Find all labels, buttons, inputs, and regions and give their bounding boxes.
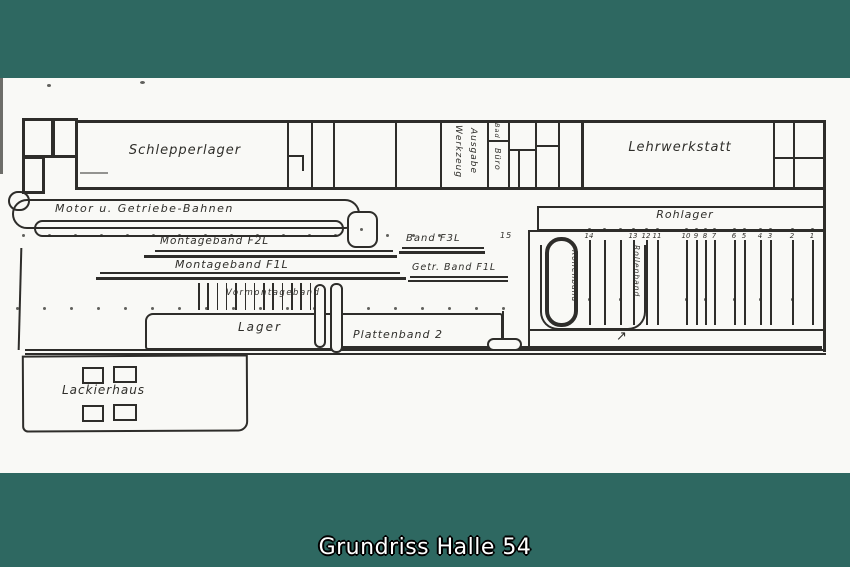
station-top-dot: [759, 228, 762, 231]
partition-wall: [793, 120, 795, 190]
station-top-dot: [619, 228, 622, 231]
image-caption: Grundriss Halle 54: [0, 535, 850, 560]
partition-wall: [440, 120, 442, 190]
station-top-dot: [645, 228, 648, 231]
conveyor-label-f2l: Montageband F2L: [160, 236, 269, 247]
station-top-dot: [769, 228, 772, 231]
support-dot: [367, 307, 370, 310]
station-top-dot: [588, 228, 591, 231]
station-line: [620, 240, 622, 325]
conveyor-label-vormontageband: Vormontageband: [226, 289, 320, 298]
station-mid-dot: [733, 298, 736, 301]
plattenband-carrier: [487, 338, 522, 351]
hall-left-wall: [18, 248, 23, 350]
room-label-werkzeug: Werkzeug: [453, 125, 462, 178]
station-top-dot: [791, 228, 794, 231]
station-mid-dot: [704, 298, 707, 301]
station-dot: [360, 228, 363, 231]
support-dot: [97, 307, 100, 310]
station-top-dot: [603, 228, 606, 231]
station-line: [604, 240, 606, 325]
support-dot: [178, 307, 181, 310]
station-number: 13: [626, 233, 640, 240]
montageband-f1l-line: [100, 272, 400, 274]
scan-edge-artifact: [0, 78, 3, 174]
band-f3l-line: [402, 247, 484, 249]
support-dot: [334, 234, 337, 237]
conveyor-label-f3l: Band F3L: [406, 234, 461, 244]
station-line: [770, 240, 772, 325]
station-number: 14: [582, 233, 596, 240]
support-dot: [100, 234, 103, 237]
montageband-f2l-line: [155, 250, 393, 252]
station-line: [744, 240, 746, 325]
station-top-dot: [704, 228, 707, 231]
partition-wall: [333, 120, 335, 190]
station-number: 1: [805, 233, 819, 240]
vormontage-tick: [207, 283, 209, 310]
station-line: [646, 240, 648, 325]
conveyor-label-motor-getriebe: Motor u. Getriebe-Bahnen: [55, 203, 234, 214]
support-dot: [286, 307, 289, 310]
room-label-bad: Bad: [494, 123, 501, 139]
small-room: [22, 118, 54, 158]
support-dot: [126, 234, 129, 237]
station-number: 7: [707, 233, 721, 240]
station-mid-dot: [588, 298, 591, 301]
support-dot: [475, 307, 478, 310]
station-line: [792, 240, 794, 325]
station-line: [696, 240, 698, 325]
getr-band-f1l-line: [408, 280, 508, 282]
station-mid-dot: [685, 298, 688, 301]
station-mid-dot: [759, 298, 762, 301]
support-dot: [421, 307, 424, 310]
room-label-ausgabe: Ausgabe: [468, 128, 477, 174]
station-mid-dot: [791, 298, 794, 301]
scan-speck: [140, 81, 145, 84]
lackierhaus-booth: [82, 367, 104, 384]
station-line: [812, 240, 814, 325]
partition-wall: [508, 120, 510, 190]
conveyor-label-plattenband: Plattenband 2: [353, 329, 443, 340]
conveyor-label-rollenband-2: Rollenband: [633, 245, 641, 297]
scan-dash: [80, 172, 108, 174]
partition-wall: [487, 140, 508, 142]
station-line: [760, 240, 762, 325]
partition-wall: [773, 157, 826, 159]
station-number: 5: [737, 233, 751, 240]
montageband-f1l-line: [96, 277, 406, 280]
small-room: [22, 156, 45, 194]
station-area-divider: [528, 230, 530, 350]
partition-wall: [508, 149, 535, 151]
station-top-dot: [743, 228, 746, 231]
flow-arrow: ↗: [616, 330, 628, 343]
support-dot: [151, 307, 154, 310]
station-top-dot: [733, 228, 736, 231]
partition-wall: [535, 145, 558, 147]
vormontage-tick: [198, 283, 200, 310]
station-top-dot: [656, 228, 659, 231]
partition-wall: [558, 120, 560, 190]
small-room: [52, 118, 78, 158]
support-dot: [43, 307, 46, 310]
station-area-top-line: [528, 230, 826, 232]
station-top-dot: [713, 228, 716, 231]
station-top-dot: [685, 228, 688, 231]
conveyor-label-f1l: Montageband F1L: [175, 259, 289, 270]
support-dot: [74, 234, 77, 237]
station-mid-dot: [619, 298, 622, 301]
lackierhaus-booth: [113, 404, 137, 421]
partition-wall: [535, 120, 537, 190]
support-dot: [16, 307, 19, 310]
support-dot: [394, 307, 397, 310]
support-dot: [48, 234, 51, 237]
partition-wall: [302, 155, 304, 171]
partition-wall: [395, 120, 397, 190]
station-top-dot: [811, 228, 814, 231]
partition-wall: [773, 120, 775, 190]
station-line: [657, 240, 659, 325]
station-top-dot: [695, 228, 698, 231]
station-number: 11: [650, 233, 664, 240]
conveyor-label-rollenband-1: Rollenband: [571, 250, 579, 302]
support-dot: [70, 307, 73, 310]
lackierhaus-booth: [113, 366, 137, 383]
support-dot: [282, 234, 285, 237]
room-label-schlepperlager: Schlepperlager: [95, 144, 275, 157]
vertical-conveyor-capsule: [330, 283, 343, 353]
gate-number-15: 15: [500, 232, 512, 240]
station-line: [734, 240, 736, 325]
rollenband-return-loop: [540, 245, 646, 330]
support-dot: [502, 307, 505, 310]
support-dot: [22, 234, 25, 237]
station-line: [705, 240, 707, 325]
support-dot: [124, 307, 127, 310]
support-dot: [152, 234, 155, 237]
getr-band-f1l-line: [410, 276, 508, 278]
hall-right-wall: [823, 120, 826, 352]
scan-speck: [47, 84, 51, 87]
vormontage-tick: [217, 283, 219, 310]
station-mid-dot: [645, 298, 648, 301]
station-line: [589, 240, 591, 325]
conveyor-label-getr-f1l: Getr. Band F1L: [412, 263, 496, 273]
partition-wall: [518, 149, 520, 190]
room-label-buero: Büro: [493, 148, 501, 171]
room-label-lackierhaus: Lackierhaus: [62, 384, 145, 396]
lackierhaus-booth: [82, 405, 104, 422]
station-number: 2: [785, 233, 799, 240]
room-label-lehrwerkstatt: Lehrwerkstatt: [595, 141, 765, 154]
support-dot: [386, 234, 389, 237]
room-label-lager: Lager: [238, 321, 282, 333]
station-line: [686, 240, 688, 325]
partition-wall: [311, 120, 313, 190]
support-dot: [448, 307, 451, 310]
scanned-floorplan-page: Schlepperlager Lehrwerkstatt Werkzeug Au…: [0, 0, 850, 567]
station-top-dot: [632, 228, 635, 231]
floorplan-scan: Schlepperlager Lehrwerkstatt Werkzeug Au…: [0, 78, 850, 473]
station-line: [714, 240, 716, 325]
room-label-rohlager: Rohlager: [610, 209, 760, 220]
station-number: 3: [763, 233, 777, 240]
partition-wall: [581, 120, 584, 190]
support-dot: [259, 307, 262, 310]
band-f3l-line: [399, 251, 485, 254]
support-dot: [308, 234, 311, 237]
partition-wall: [487, 120, 489, 190]
